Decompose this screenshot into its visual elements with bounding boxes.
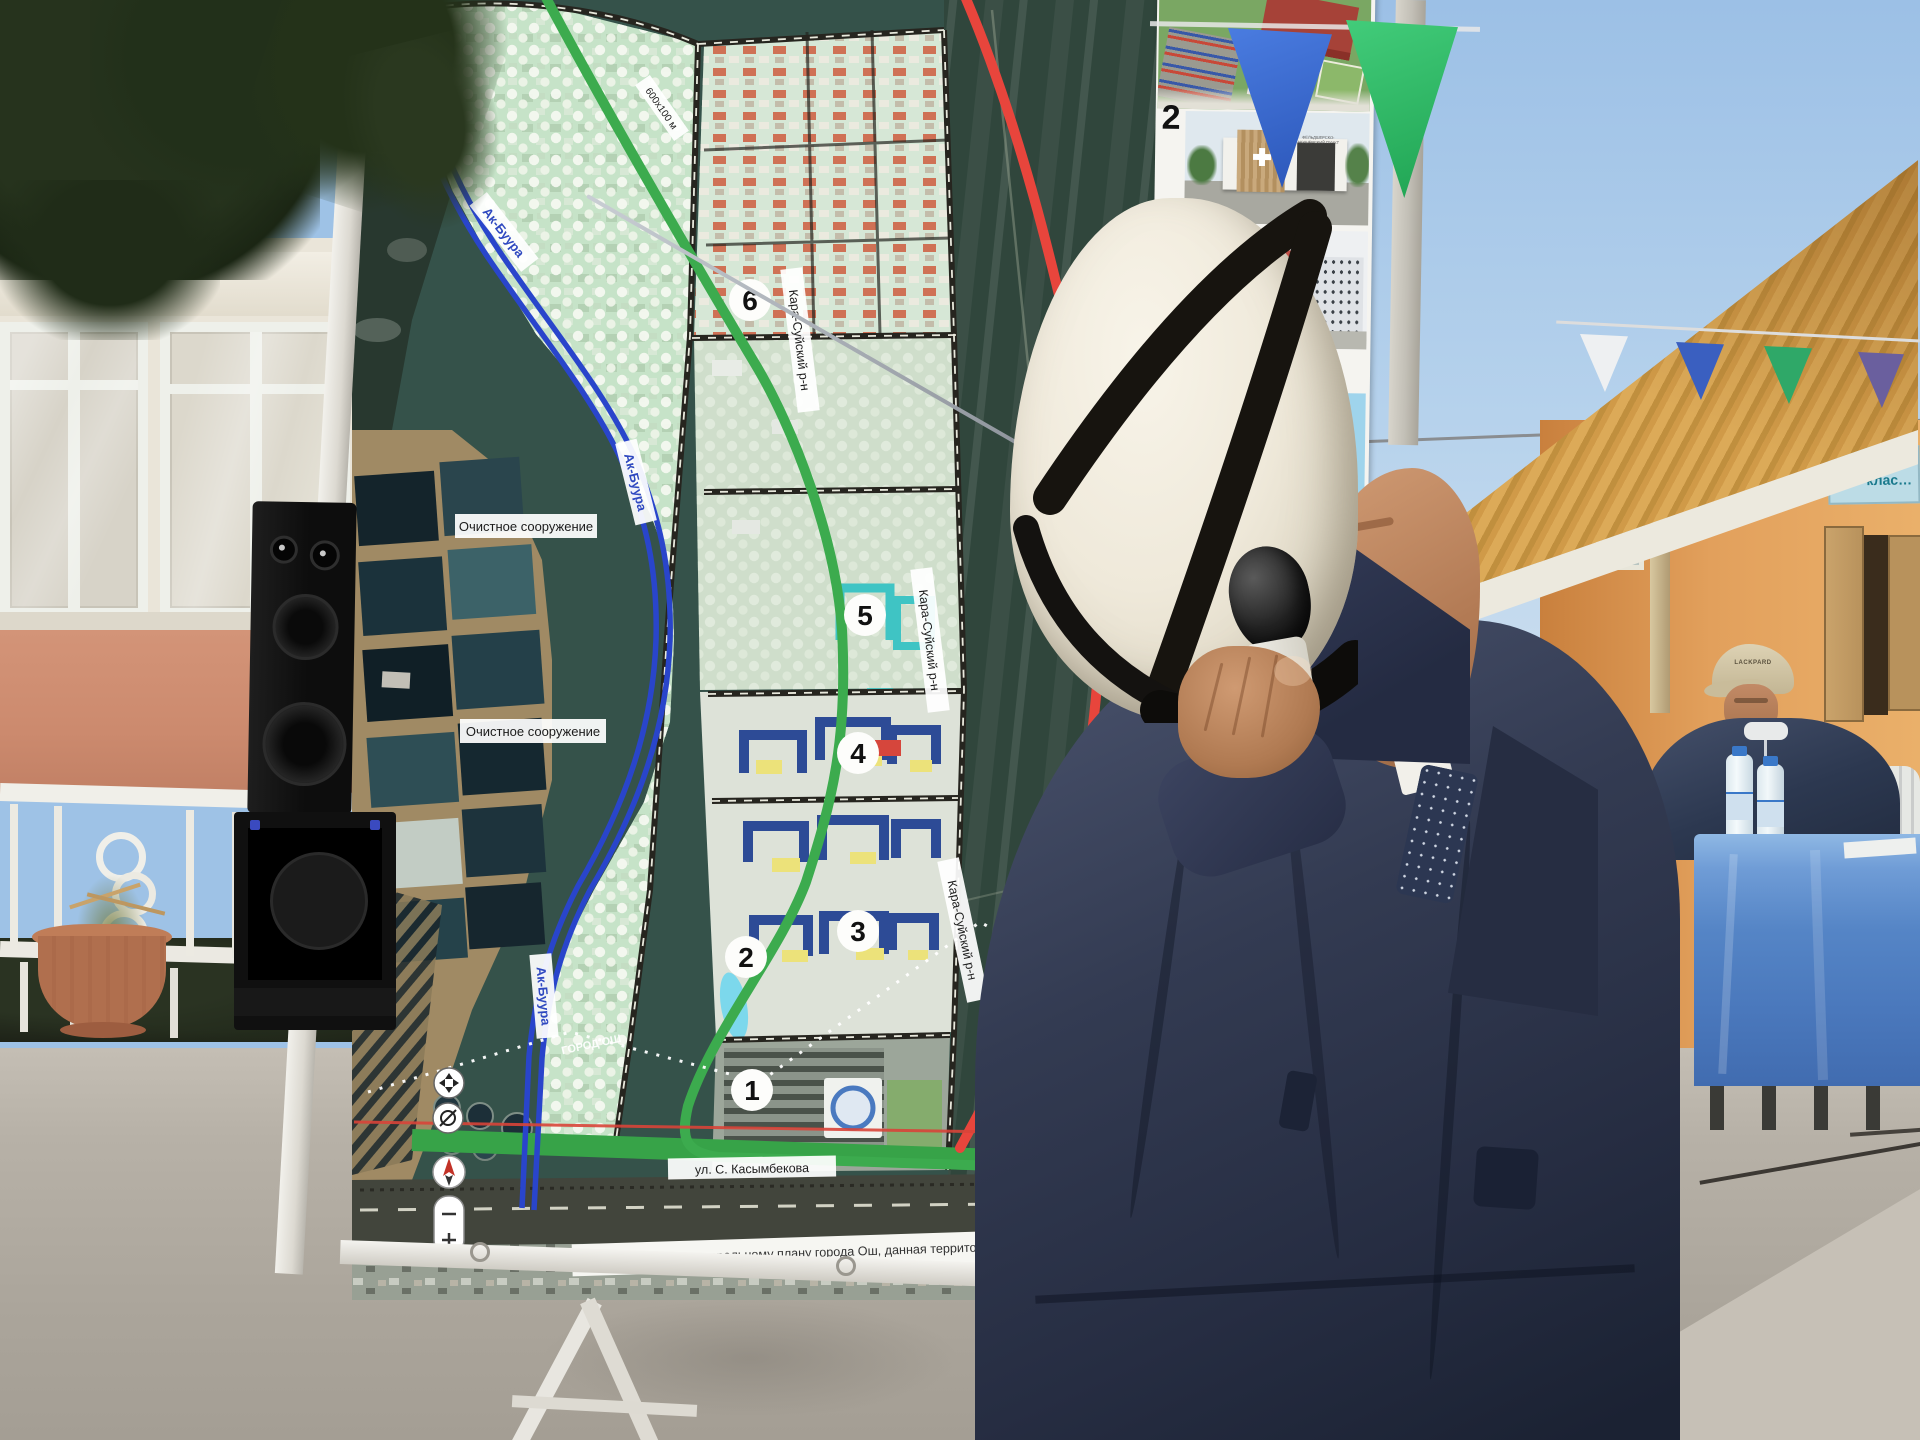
photo-scene: Баштал… клас… [0, 0, 1920, 1440]
treatment-label: Очистное сооружение [455, 514, 597, 538]
svg-text:3: 3 [850, 916, 866, 947]
svg-text:1: 1 [744, 1075, 760, 1106]
plaza-ring [833, 1088, 873, 1128]
street-label: ул. С. Касымбекова [668, 1156, 836, 1180]
map-marker-4: 4 [837, 732, 879, 774]
fence-baluster [186, 810, 194, 956]
cable [1699, 1139, 1920, 1185]
svg-text:ул. С. Касымбекова: ул. С. Касымбекова [695, 1161, 809, 1177]
jacket-pocket [1473, 1146, 1539, 1210]
map-control-pan-icon [434, 1068, 464, 1098]
subwoofer-driver [270, 852, 368, 950]
subwoofer [234, 812, 396, 1030]
speaker-driver [272, 593, 339, 660]
svg-text:5: 5 [857, 600, 873, 631]
map-control-compass-icon [433, 1156, 465, 1188]
map-control-no-entry-icon [433, 1103, 463, 1133]
treatment-label: Очистное сооружение [460, 719, 606, 743]
map-marker-2: 2 [725, 936, 767, 978]
speaker-tweeter [310, 540, 341, 571]
panel-item-number: 2 [1161, 99, 1180, 138]
speaker-driver [262, 701, 347, 786]
map-marker-5: 5 [844, 594, 886, 636]
jacket-hem-seam [1035, 1264, 1635, 1303]
table-legs-shadow [1710, 1086, 1910, 1130]
papers [1844, 838, 1917, 859]
jacket-pocket [1278, 1070, 1318, 1132]
cable-tie [250, 820, 260, 830]
medical-cross-icon [1253, 148, 1271, 166]
svg-text:2: 2 [738, 942, 754, 973]
flower-pot [28, 872, 178, 1052]
map-marker-3: 3 [837, 910, 879, 952]
speaker-top [247, 501, 356, 815]
fence-baluster [10, 804, 18, 950]
pot-body [38, 936, 166, 1028]
stand-hook [470, 1242, 490, 1262]
cap-logo-text: LACKPARD [1712, 660, 1794, 666]
cable-tie [370, 820, 380, 830]
tree [0, 0, 520, 390]
svg-text:Очистное сооружение: Очистное сооружение [466, 724, 600, 739]
map-marker-1: 1 [731, 1069, 773, 1111]
fence-lower-baluster [20, 962, 28, 1032]
speaker-tweeter [270, 535, 298, 563]
pot-saucer [60, 1022, 146, 1038]
stand-hook [836, 1256, 856, 1276]
svg-text:Очистное сооружение: Очистное сооружение [459, 519, 593, 534]
stand-pole-clamp [382, 671, 411, 688]
table-blue-cloth [1694, 834, 1920, 1086]
svg-text:4: 4 [850, 738, 866, 769]
